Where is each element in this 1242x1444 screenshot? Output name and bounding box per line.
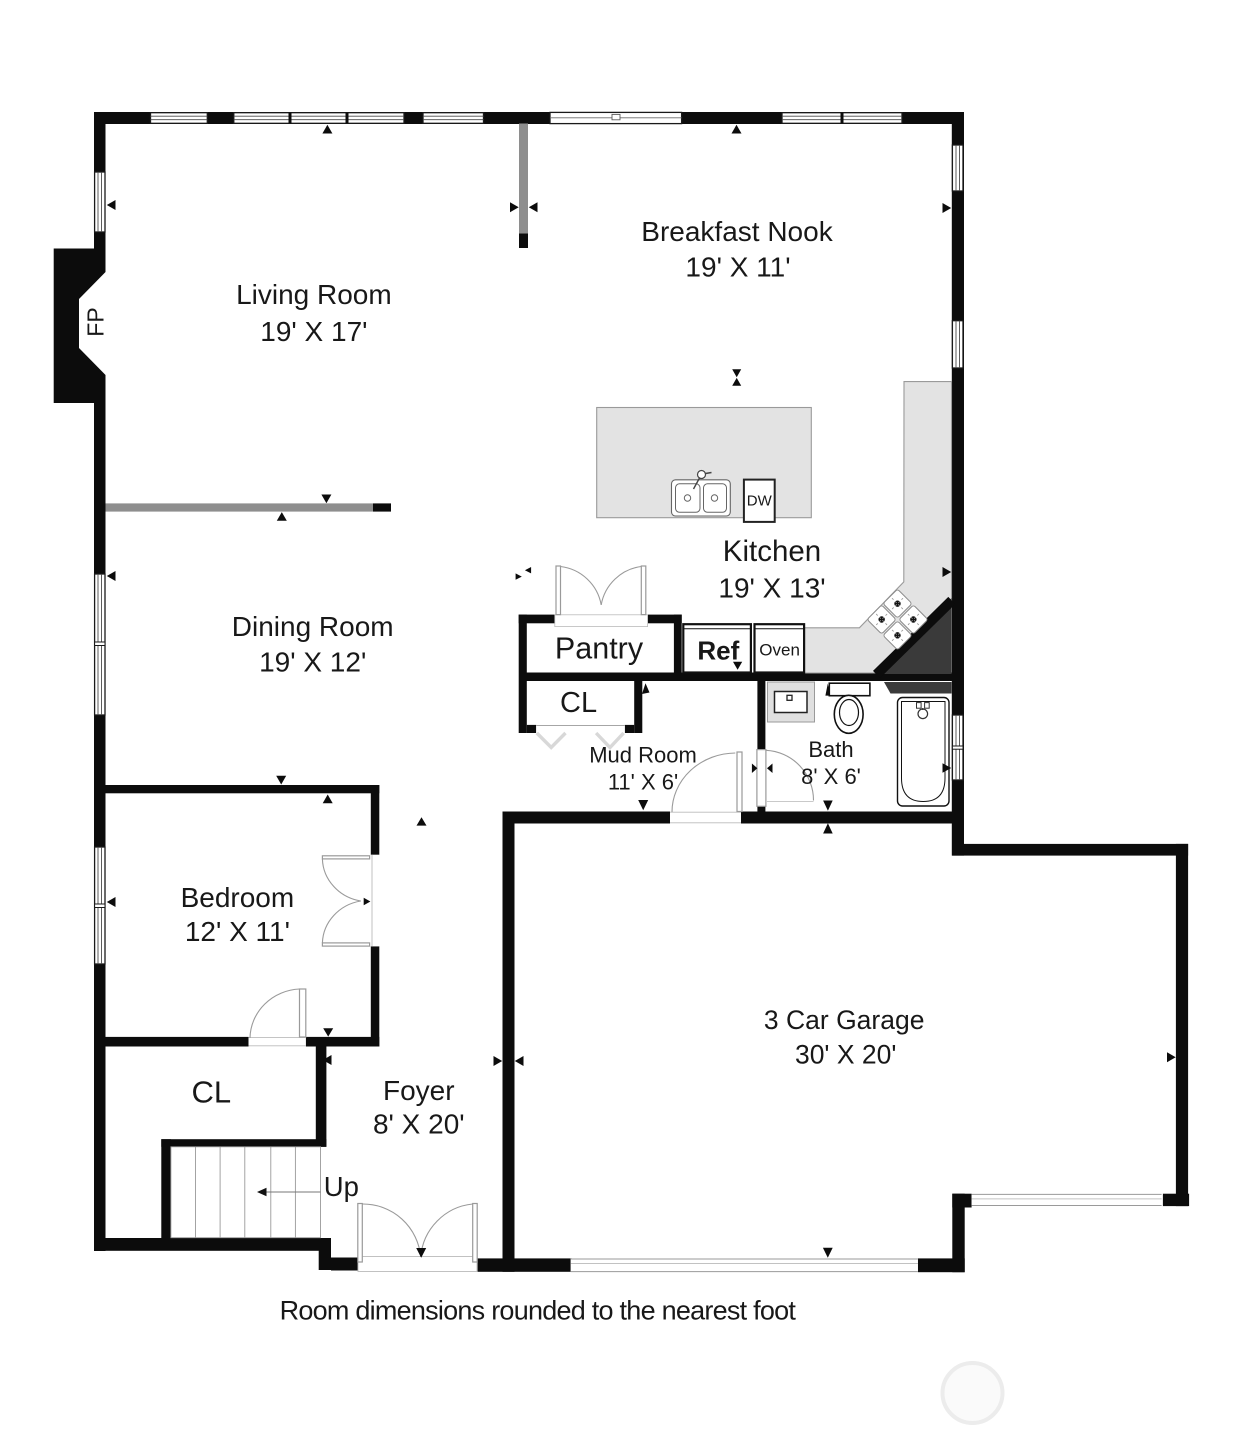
svg-text:11' X 6': 11' X 6' [608, 770, 678, 795]
svg-text:12' X 11': 12' X 11' [185, 916, 290, 947]
svg-text:Dining Room: Dining Room [232, 611, 394, 642]
svg-text:Living Room: Living Room [236, 279, 392, 310]
svg-text:Mud Room: Mud Room [589, 743, 697, 768]
svg-text:Ref: Ref [697, 636, 739, 666]
svg-text:Breakfast Nook: Breakfast Nook [641, 216, 833, 247]
svg-text:Bedroom: Bedroom [181, 882, 295, 913]
svg-text:8' X 6': 8' X 6' [801, 764, 861, 789]
svg-text:19' X 11': 19' X 11' [685, 252, 790, 283]
svg-text:Oven: Oven [759, 641, 800, 660]
svg-text:Pantry: Pantry [555, 632, 644, 666]
svg-text:3 Car Garage: 3 Car Garage [764, 1005, 925, 1035]
svg-text:19' X 13': 19' X 13' [718, 573, 825, 604]
svg-text:FP: FP [83, 307, 109, 336]
svg-text:Foyer: Foyer [383, 1075, 455, 1106]
svg-text:CL: CL [191, 1075, 231, 1110]
svg-text:Room dimensions rounded to the: Room dimensions rounded to the nearest f… [280, 1296, 797, 1326]
svg-text:CL: CL [560, 687, 597, 719]
svg-text:19' X 17': 19' X 17' [260, 316, 367, 347]
svg-text:19' X 12': 19' X 12' [259, 647, 366, 678]
svg-text:8' X 20': 8' X 20' [373, 1109, 465, 1140]
svg-text:Kitchen: Kitchen [723, 535, 821, 568]
svg-text:DW: DW [747, 493, 773, 510]
svg-text:Up: Up [324, 1171, 359, 1202]
svg-text:Bath: Bath [808, 737, 853, 762]
svg-text:30' X 20': 30' X 20' [795, 1040, 896, 1070]
